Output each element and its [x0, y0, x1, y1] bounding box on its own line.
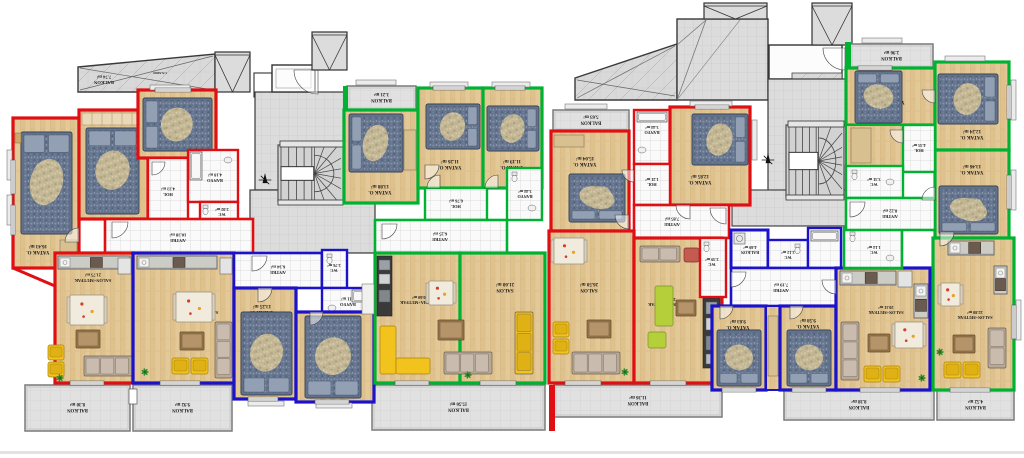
svg-text:8.38 m²: 8.38 m² — [851, 398, 867, 404]
svg-text:HOL: HOL — [451, 204, 461, 209]
svg-text:7.74 m²: 7.74 m² — [96, 74, 111, 79]
svg-text:BANYO: BANYO — [206, 178, 222, 183]
svg-text:ANTRE: ANTRE — [882, 214, 898, 219]
svg-text:21.75 m²: 21.75 m² — [84, 273, 101, 278]
svg-text:BALKON: BALKON — [67, 407, 88, 412]
svg-text:2.12 m²: 2.12 m² — [781, 250, 795, 255]
svg-text:BALKON: BALKON — [627, 400, 648, 405]
svg-text:YATAK O.: YATAK O. — [960, 169, 984, 174]
svg-text:BALKON: BALKON — [93, 80, 114, 85]
svg-text:20.60 m²: 20.60 m² — [412, 295, 428, 300]
svg-text:4.33 m²: 4.33 m² — [160, 187, 174, 192]
svg-text:2.96 m²: 2.96 m² — [883, 49, 899, 55]
svg-text:9.92 m²: 9.92 m² — [174, 401, 190, 407]
svg-text:BALKON: BALKON — [448, 407, 469, 412]
svg-text:BALKON: BALKON — [172, 407, 193, 412]
svg-text:13.46 m²: 13.46 m² — [962, 163, 981, 169]
svg-text:5.63 m²: 5.63 m² — [583, 114, 599, 120]
svg-text:ANTRE: ANTRE — [773, 288, 789, 293]
svg-text:6.76 m²: 6.76 m² — [448, 199, 462, 204]
svg-text:3.21 m²: 3.21 m² — [373, 91, 389, 97]
svg-text:ANTRE: ANTRE — [170, 238, 186, 243]
svg-text:ANTRE: ANTRE — [270, 270, 286, 275]
svg-text:12.24 m²: 12.24 m² — [962, 128, 981, 134]
svg-text:ANTRE: ANTRE — [664, 222, 680, 227]
svg-text:4.52 m²: 4.52 m² — [967, 398, 983, 404]
svg-text:11.36 m²: 11.36 m² — [629, 394, 647, 400]
svg-text:21.60 m²: 21.60 m² — [495, 281, 514, 287]
svg-text:15.04 m²: 15.04 m² — [575, 155, 594, 161]
svg-text:YATAK O.: YATAK O. — [960, 134, 984, 139]
svg-text:2.39 m²: 2.39 m² — [705, 257, 719, 262]
svg-text:HOL: HOL — [163, 192, 173, 197]
svg-text:SALON: SALON — [496, 287, 514, 292]
svg-text:3.44 m²: 3.44 m² — [645, 125, 659, 130]
svg-text:YATAK O.: YATAK O. — [726, 324, 750, 329]
svg-text:6.25 m²: 6.25 m² — [432, 231, 447, 236]
svg-text:7.85 m²: 7.85 m² — [664, 216, 679, 221]
svg-text:SALON: SALON — [580, 287, 598, 292]
svg-text:13.88 m²: 13.88 m² — [370, 183, 389, 189]
svg-text:3.44 m²: 3.44 m² — [518, 189, 532, 194]
svg-text:10.38 m²: 10.38 m² — [169, 232, 186, 237]
svg-text:8.30 m²: 8.30 m² — [69, 401, 85, 407]
svg-text:YATAK O.: YATAK O. — [26, 249, 50, 254]
svg-text:20.11 m²: 20.11 m² — [878, 305, 894, 310]
svg-text:4.18 m²: 4.18 m² — [207, 173, 221, 178]
svg-text:SALON+MUTFAK: SALON+MUTFAK — [74, 278, 111, 283]
svg-text:BANYO: BANYO — [339, 302, 355, 307]
svg-text:1.21 m²: 1.21 m² — [645, 177, 659, 182]
svg-text:1.14 m²: 1.14 m² — [867, 245, 881, 250]
svg-text:15.56 m²: 15.56 m² — [449, 401, 467, 407]
svg-text:2.02 m²: 2.02 m² — [215, 207, 229, 212]
svg-text:ANTRE: ANTRE — [432, 237, 448, 242]
svg-text:6.34 m²: 6.34 m² — [270, 264, 285, 269]
svg-text:YATAK O.: YATAK O. — [573, 161, 597, 166]
svg-text:8.22 m²: 8.22 m² — [882, 208, 897, 213]
svg-text:11.19 m²: 11.19 m² — [503, 158, 521, 164]
svg-text:BALKON: BALKON — [580, 120, 601, 125]
svg-text:4.69 m²: 4.69 m² — [743, 245, 757, 250]
svg-text:13.25 m²: 13.25 m² — [252, 303, 271, 309]
svg-text:BALKON: BALKON — [848, 404, 869, 409]
svg-text:YATAK O.: YATAK O. — [796, 323, 820, 328]
svg-text:BALKON: BALKON — [881, 55, 902, 60]
svg-text:YATAK O.: YATAK O. — [438, 164, 462, 169]
svg-text:11.26 m²: 11.26 m² — [441, 158, 459, 164]
svg-text:7.19 m²: 7.19 m² — [773, 282, 788, 287]
svg-text:9.58 m²: 9.58 m² — [800, 317, 816, 323]
svg-text:16.43 m²: 16.43 m² — [28, 243, 47, 249]
svg-text:9.63 m²: 9.63 m² — [730, 318, 746, 324]
svg-text:4.33 m²: 4.33 m² — [912, 143, 926, 148]
svg-text:12.85 m²: 12.85 m² — [690, 173, 709, 179]
svg-text:CN-M030: CN-M030 — [153, 71, 167, 75]
svg-text:BALKON: BALKON — [371, 97, 392, 102]
svg-text:22.80 m²: 22.80 m² — [967, 310, 983, 315]
svg-text:26.50 m²: 26.50 m² — [579, 281, 598, 287]
svg-text:BALKON: BALKON — [965, 404, 986, 409]
svg-text:3.31 m²: 3.31 m² — [867, 177, 881, 182]
svg-text:YATAK O.: YATAK O. — [688, 179, 712, 184]
svg-text:YATAK O.: YATAK O. — [368, 189, 392, 194]
